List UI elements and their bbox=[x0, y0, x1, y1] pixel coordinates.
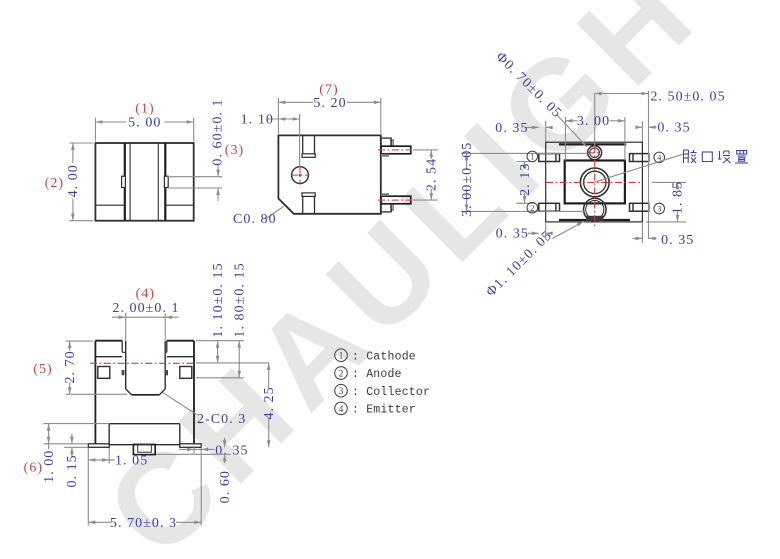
svg-text:: Anode: : Anode bbox=[352, 368, 402, 381]
svg-text:0. 60: 0. 60 bbox=[218, 470, 233, 503]
svg-text:3: 3 bbox=[339, 387, 344, 397]
svg-text:(6): (6) bbox=[24, 460, 43, 475]
svg-text:1. 85: 1. 85 bbox=[671, 181, 686, 214]
svg-text:1: 1 bbox=[530, 152, 534, 162]
svg-text:0. 35: 0. 35 bbox=[496, 227, 529, 242]
svg-text:(5): (5) bbox=[33, 362, 52, 377]
svg-text:2. 70: 2. 70 bbox=[63, 350, 78, 383]
svg-text:: Collector: : Collector bbox=[352, 386, 430, 399]
svg-text:1. 10±0. 15: 1. 10±0. 15 bbox=[211, 262, 226, 337]
svg-text:1. 10: 1. 10 bbox=[241, 112, 274, 127]
svg-text:1. 80±0. 15: 1. 80±0. 15 bbox=[232, 262, 247, 337]
svg-text:: Emitter: : Emitter bbox=[352, 404, 416, 417]
svg-text:0. 35: 0. 35 bbox=[661, 233, 694, 248]
svg-text:1. 00: 1. 00 bbox=[42, 450, 57, 483]
svg-text:C0. 80: C0. 80 bbox=[233, 212, 277, 227]
svg-text:3. 00: 3. 00 bbox=[577, 114, 610, 129]
svg-text:1. 05: 1. 05 bbox=[115, 453, 148, 468]
svg-text:2: 2 bbox=[339, 369, 344, 379]
svg-text:0. 35: 0. 35 bbox=[215, 443, 248, 458]
svg-text:(1): (1) bbox=[135, 101, 154, 116]
svg-text:4. 25: 4. 25 bbox=[262, 386, 277, 419]
svg-text:3: 3 bbox=[657, 204, 661, 214]
svg-text:5. 00: 5. 00 bbox=[128, 116, 161, 131]
svg-text:0. 35: 0. 35 bbox=[495, 121, 528, 136]
svg-text:2. 00±0. 1: 2. 00±0. 1 bbox=[112, 301, 179, 316]
svg-text:5. 70±0. 3: 5. 70±0. 3 bbox=[110, 516, 177, 531]
svg-text:5. 20: 5. 20 bbox=[313, 96, 346, 111]
svg-text:(7): (7) bbox=[319, 82, 338, 97]
svg-text:(4): (4) bbox=[136, 286, 155, 301]
svg-text:(2): (2) bbox=[45, 176, 64, 191]
svg-text:4: 4 bbox=[339, 405, 344, 415]
svg-text:2. 54: 2. 54 bbox=[425, 158, 440, 191]
svg-text:3. 00±0. 05: 3. 00±0. 05 bbox=[460, 142, 475, 217]
svg-text:2. 13: 2. 13 bbox=[518, 163, 533, 196]
svg-text:0. 15: 0. 15 bbox=[65, 454, 80, 487]
svg-text:2. 50±0. 05: 2. 50±0. 05 bbox=[650, 90, 725, 105]
svg-text:(3): (3) bbox=[225, 143, 244, 158]
svg-text:4. 00: 4. 00 bbox=[66, 164, 81, 197]
svg-text:0. 60±0. 1: 0. 60±0. 1 bbox=[211, 98, 226, 165]
svg-text:: Cathode: : Cathode bbox=[352, 350, 416, 363]
svg-text:2-C0. 3: 2-C0. 3 bbox=[197, 412, 246, 427]
svg-text:1: 1 bbox=[339, 352, 344, 362]
svg-text:0. 35: 0. 35 bbox=[657, 121, 690, 136]
svg-text:2: 2 bbox=[530, 203, 534, 213]
